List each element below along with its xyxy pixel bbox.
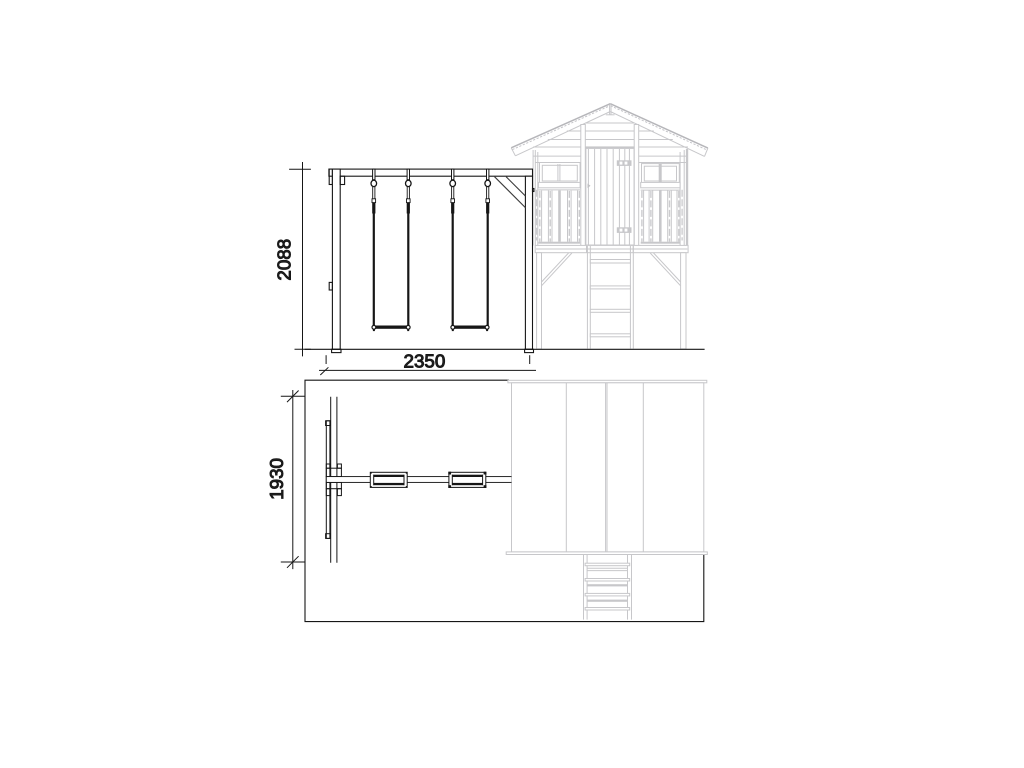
svg-text:1930: 1930 — [266, 458, 287, 500]
svg-text:2088: 2088 — [273, 239, 294, 281]
svg-text:2350: 2350 — [404, 351, 446, 372]
